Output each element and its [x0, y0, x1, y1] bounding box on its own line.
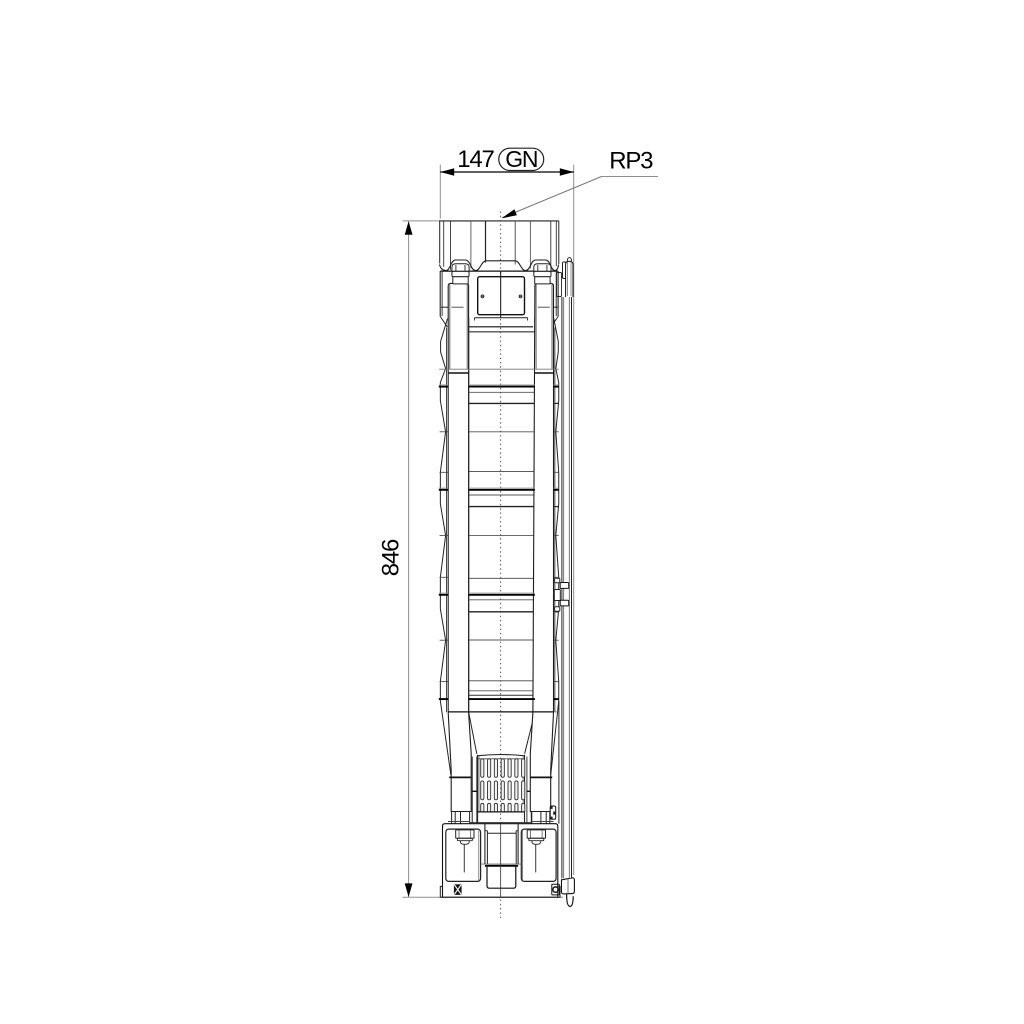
svg-text:846: 846	[378, 539, 405, 576]
svg-text:147: 147	[457, 146, 494, 173]
svg-text:GN: GN	[505, 146, 537, 172]
svg-text:RP3: RP3	[609, 147, 653, 174]
